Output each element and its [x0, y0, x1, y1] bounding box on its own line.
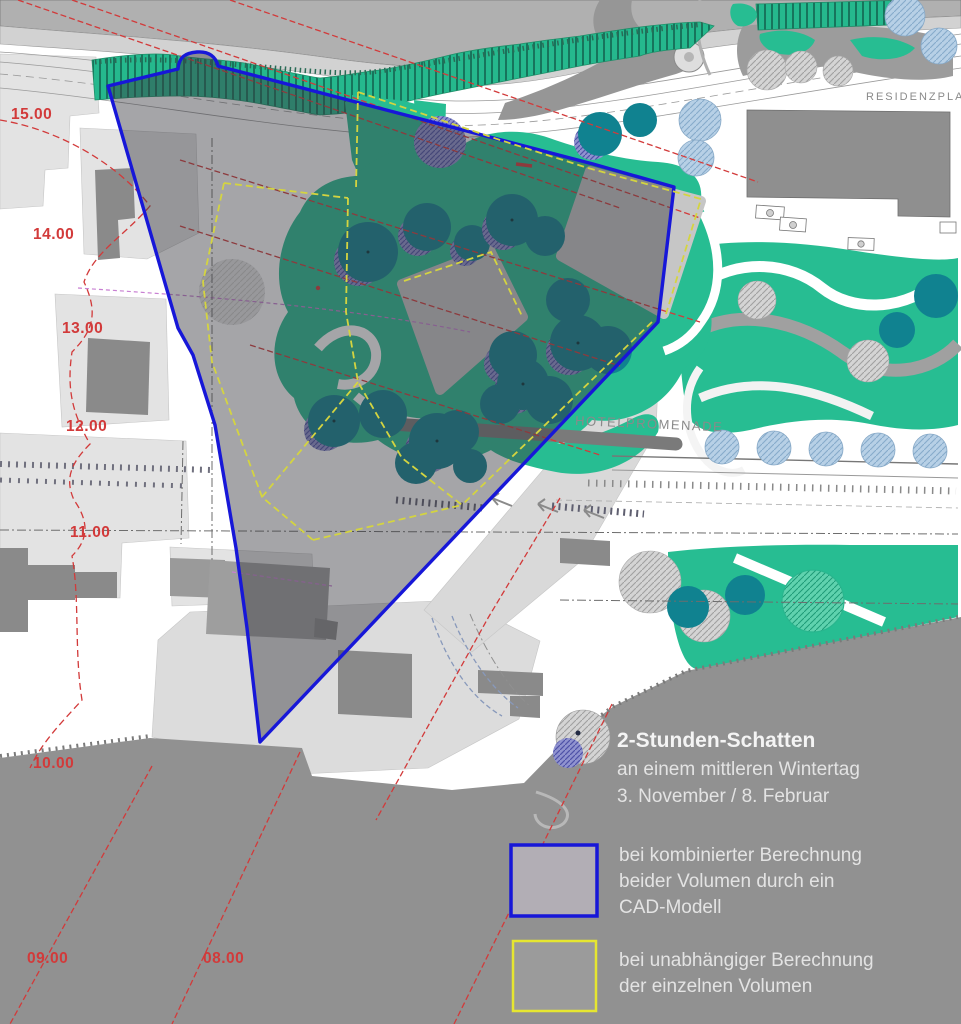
- building: [510, 696, 540, 718]
- roundabout-center: [684, 52, 694, 62]
- legend-subtitle-1: an einem mittleren Wintertag: [617, 759, 860, 780]
- contour-label-08: 08.00: [203, 950, 244, 967]
- tree-promenade-blue: [679, 99, 721, 141]
- legend-title: 2-Stunden-Schatten: [617, 729, 815, 752]
- legend-swatch-independent: [513, 941, 596, 1011]
- building: [478, 670, 543, 696]
- tree-promenade-blue: [861, 433, 895, 467]
- legend-independent-line-1: bei unabhängiger Berechnung: [619, 950, 874, 971]
- tree-canopy-teal: [623, 103, 657, 137]
- tree-promenade-blue: [885, 0, 925, 36]
- tree-existing-gray: [847, 340, 889, 382]
- tree-accent-indigo: [553, 738, 583, 768]
- bench-seat: [858, 241, 864, 247]
- legend-combined-line-2: beider Volumen durch ein: [619, 871, 834, 892]
- building: [560, 538, 610, 566]
- contour-label-12: 12.00: [66, 418, 107, 435]
- contour-label-14: 14.00: [33, 226, 74, 243]
- tree-promenade-blue: [921, 28, 957, 64]
- building: [86, 338, 150, 415]
- building: [75, 572, 117, 598]
- contour-label-10: 10.00: [33, 755, 74, 772]
- tree-promenade-blue: [757, 431, 791, 465]
- contour-label-09: 09.00: [27, 950, 68, 967]
- contour-label-13: 13.00: [62, 320, 103, 337]
- residenzplatz-label: RESIDENZPLATZ: [866, 91, 961, 103]
- site-plan-canvas: HOTELPROMENADE RESIDENZPLATZ 15.00 14.00…: [0, 0, 961, 1024]
- tree-promenade-blue: [809, 432, 843, 466]
- bench: [940, 222, 956, 233]
- tree-promenade-blue: [913, 434, 947, 468]
- legend-independent-line-2: der einzelnen Volumen: [619, 976, 812, 997]
- tree-existing-gray: [785, 51, 817, 83]
- legend-combined-line-1: bei kombinierter Berechnung: [619, 845, 862, 866]
- tree-promenade-blue: [705, 430, 739, 464]
- legend-subtitle-2: 3. November / 8. Februar: [617, 786, 830, 807]
- bench-seat: [790, 222, 797, 229]
- contour-label-11: 11.00: [70, 524, 110, 541]
- tree-canopy-teal: [578, 112, 622, 156]
- tree-proposed-green: [782, 570, 844, 632]
- shadow-study-site-plan: HOTELPROMENADE RESIDENZPLATZ 15.00 14.00…: [0, 0, 961, 1024]
- contour-label-15: 15.00: [11, 106, 52, 123]
- tree-existing-gray: [738, 281, 776, 319]
- legend-swatch-combined: [511, 845, 597, 916]
- tree-canopy-teal: [879, 312, 915, 348]
- legend-combined-line-3: CAD-Modell: [619, 897, 721, 918]
- tree-canopy-teal: [914, 274, 958, 318]
- tree-existing-gray: [823, 56, 853, 86]
- tree-promenade-blue: [678, 140, 714, 176]
- tree-center-dot: [576, 731, 581, 736]
- tree-canopy-teal: [725, 575, 765, 615]
- tree-canopy-teal: [667, 586, 709, 628]
- tree-existing-gray: [747, 50, 787, 90]
- building: [338, 650, 412, 718]
- bench-seat: [767, 210, 774, 217]
